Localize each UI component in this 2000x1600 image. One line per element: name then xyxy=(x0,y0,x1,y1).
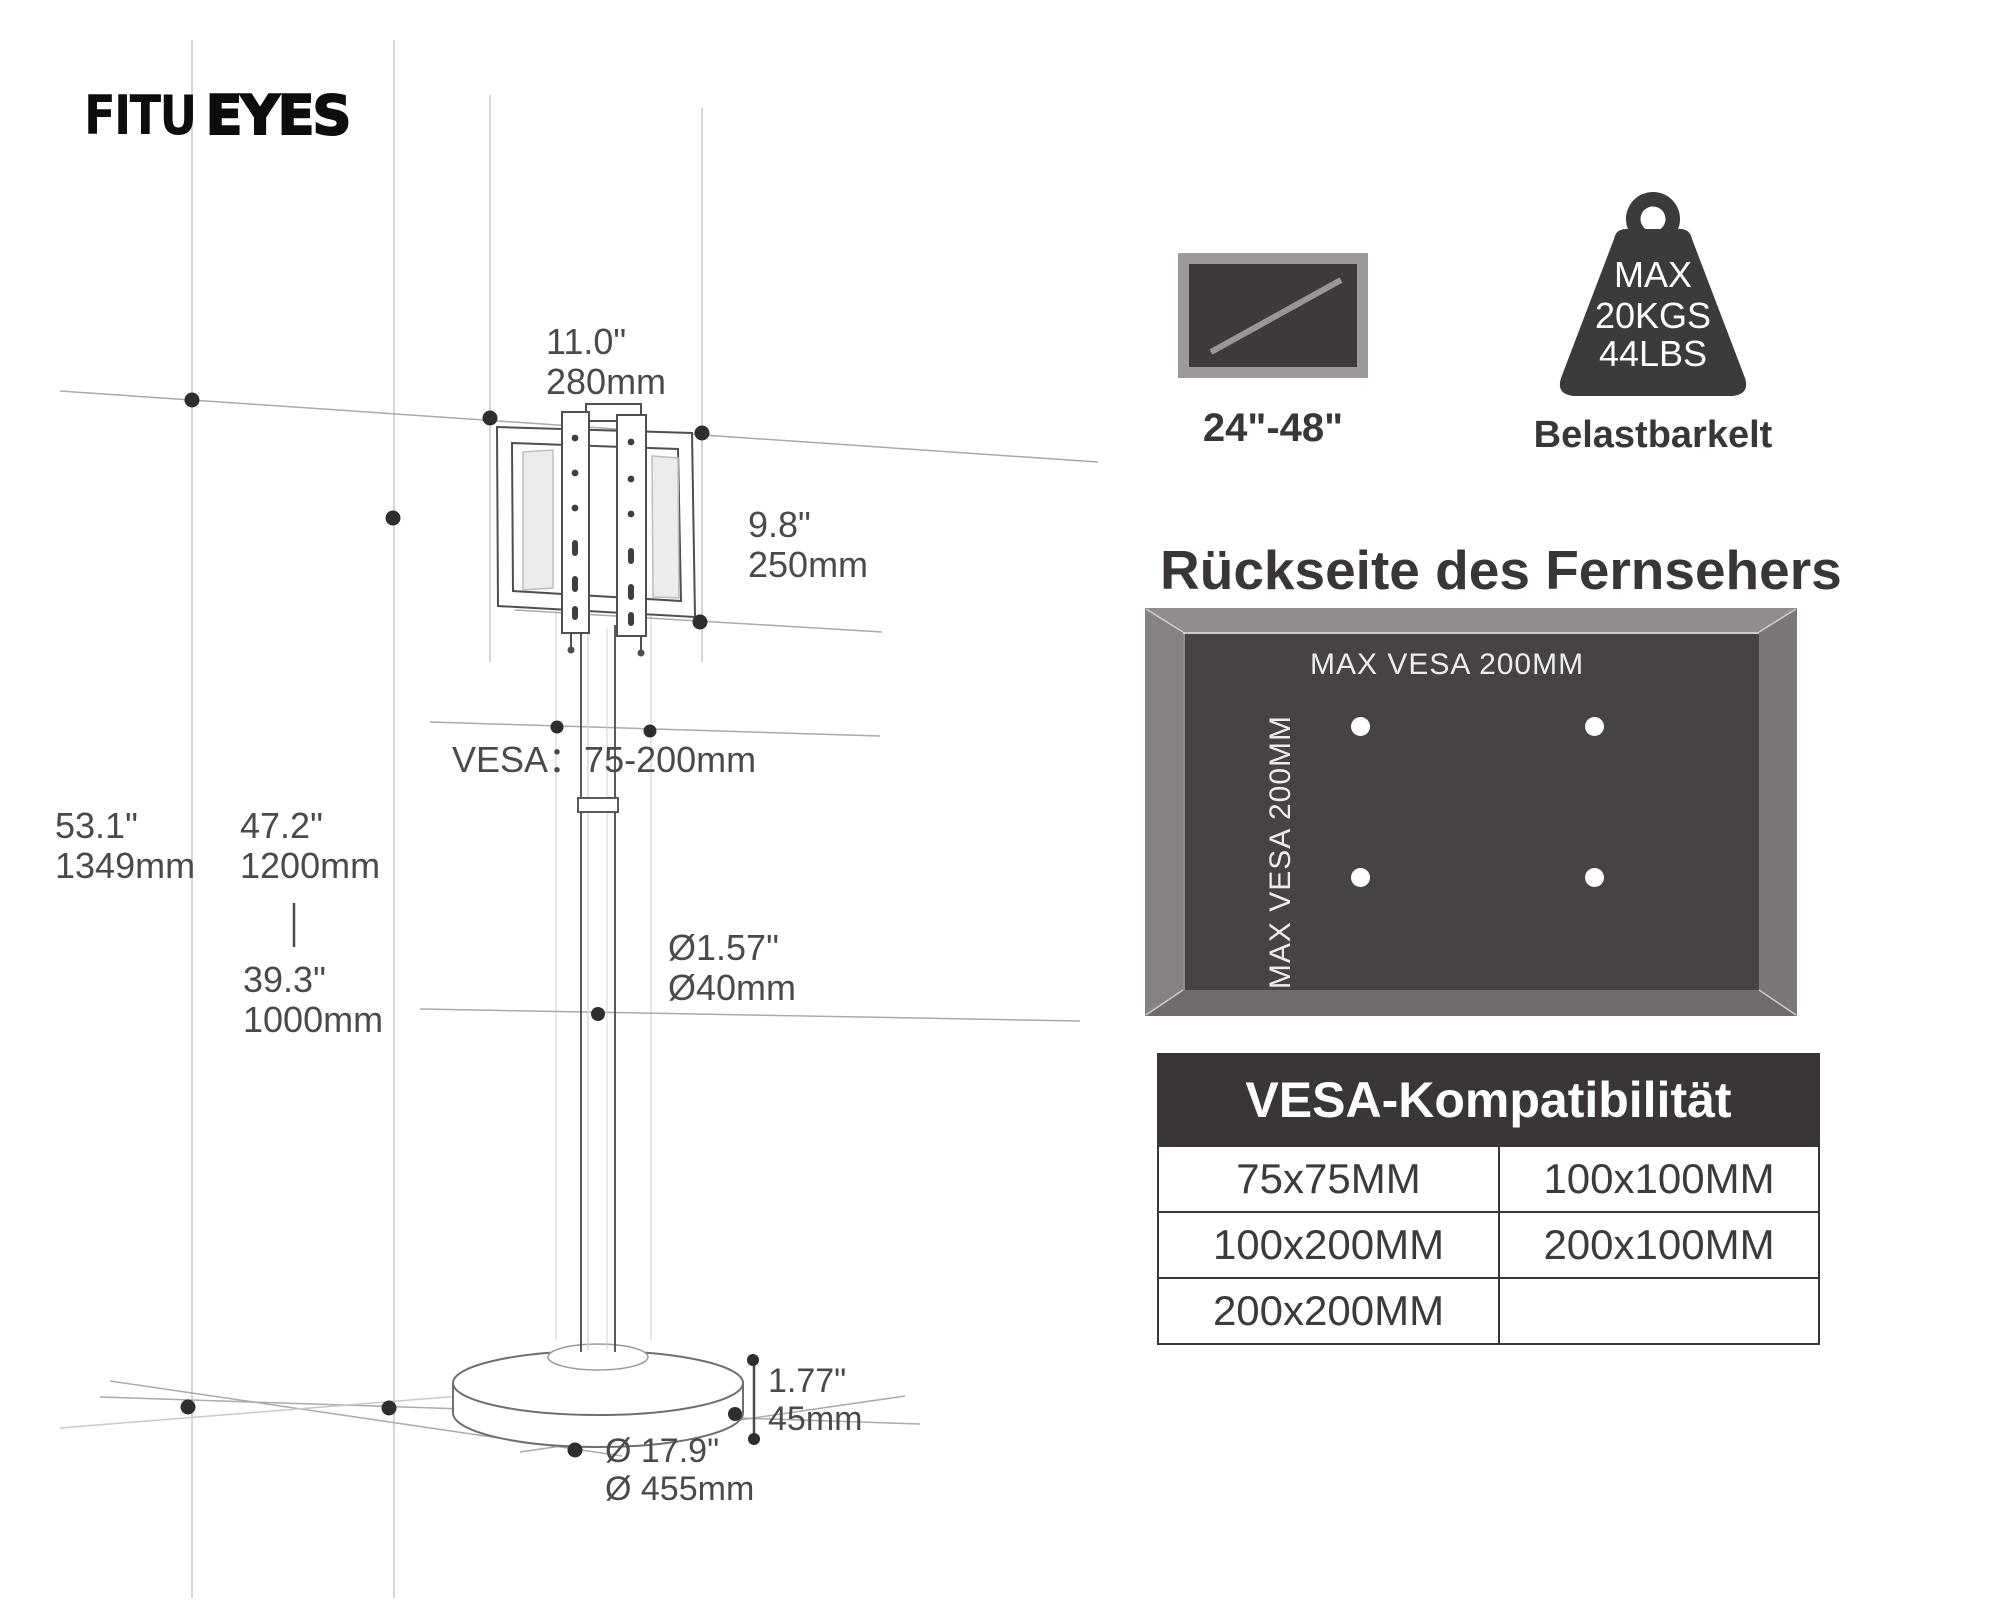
base-thickness-label: 1.77"45mm xyxy=(768,1362,862,1438)
table-row: 100x200MM 200x100MM xyxy=(1159,1211,1818,1277)
screen-diagonal-icon xyxy=(1189,264,1357,367)
back-panel-heading: Rückseite des Fernsehers xyxy=(1160,538,1842,602)
vesa-vertical-label: MAX VESA 200MM xyxy=(1261,662,1301,1042)
pole-diameter-label: Ø1.57"Ø40mm xyxy=(668,928,796,1008)
pole-max-height-label: 47.2"1200mm xyxy=(240,806,380,886)
vesa-hole-top-right xyxy=(1585,717,1604,736)
table-row: 200x200MM xyxy=(1159,1277,1818,1343)
tv-bracket xyxy=(497,404,695,656)
weight-capacity-icon: MAX 20KGS 44LBS xyxy=(1540,180,1780,420)
pole-joint-collar xyxy=(578,798,618,812)
brand-logo-light: FITU xyxy=(84,84,196,147)
stand-pole xyxy=(578,625,618,1352)
vesa-range-label: VESA：75-200mm xyxy=(452,740,756,780)
vesa-hole-top-left xyxy=(1351,717,1370,736)
vesa-strip-right xyxy=(617,415,646,636)
table-row: 75x75MM 100x100MM xyxy=(1159,1145,1818,1211)
brand-logo: FITUEYES xyxy=(84,84,349,147)
vesa-table-title: VESA-Kompatibilität xyxy=(1159,1055,1818,1145)
vesa-strip-left xyxy=(562,412,589,633)
screen-size-icon xyxy=(1178,253,1368,378)
stand-dimension-drawing xyxy=(0,0,1120,1600)
vesa-horizontal-label: MAX VESA 200MM xyxy=(1310,648,1584,682)
bracket-height-label: 9.8"250mm xyxy=(748,505,868,585)
table-cell: 200x100MM xyxy=(1498,1211,1818,1277)
table-cell: 100x100MM xyxy=(1498,1145,1818,1211)
product-spec-sheet: 11.0"280mm 9.8"250mm VESA：75-200mm 53.1"… xyxy=(0,0,2000,1600)
weight-max-text: MAX xyxy=(1614,254,1692,295)
brand-logo-bold: EYES xyxy=(206,84,350,147)
bracket-width-label: 11.0"280mm xyxy=(546,322,666,402)
base-diameter-label: Ø 17.9"Ø 455mm xyxy=(605,1432,754,1508)
weight-kgs-text: 20KGS xyxy=(1595,295,1711,336)
vesa-compatibility-table: VESA-Kompatibilität 75x75MM 100x100MM 10… xyxy=(1157,1053,1820,1345)
capacity-caption: Belastbarkelt xyxy=(1528,414,1778,457)
table-cell xyxy=(1498,1277,1818,1343)
table-cell: 100x200MM xyxy=(1159,1211,1498,1277)
weight-lbs-text: 44LBS xyxy=(1599,333,1707,374)
pole-min-height-label: 39.3"1000mm xyxy=(243,960,383,1040)
table-cell: 75x75MM xyxy=(1159,1145,1498,1211)
vesa-hole-bottom-left xyxy=(1351,868,1370,887)
table-cell: 200x200MM xyxy=(1159,1277,1498,1343)
screen-size-range: 24"-48" xyxy=(1168,406,1378,451)
vesa-hole-bottom-right xyxy=(1585,868,1604,887)
total-height-label: 53.1"1349mm xyxy=(55,806,195,886)
